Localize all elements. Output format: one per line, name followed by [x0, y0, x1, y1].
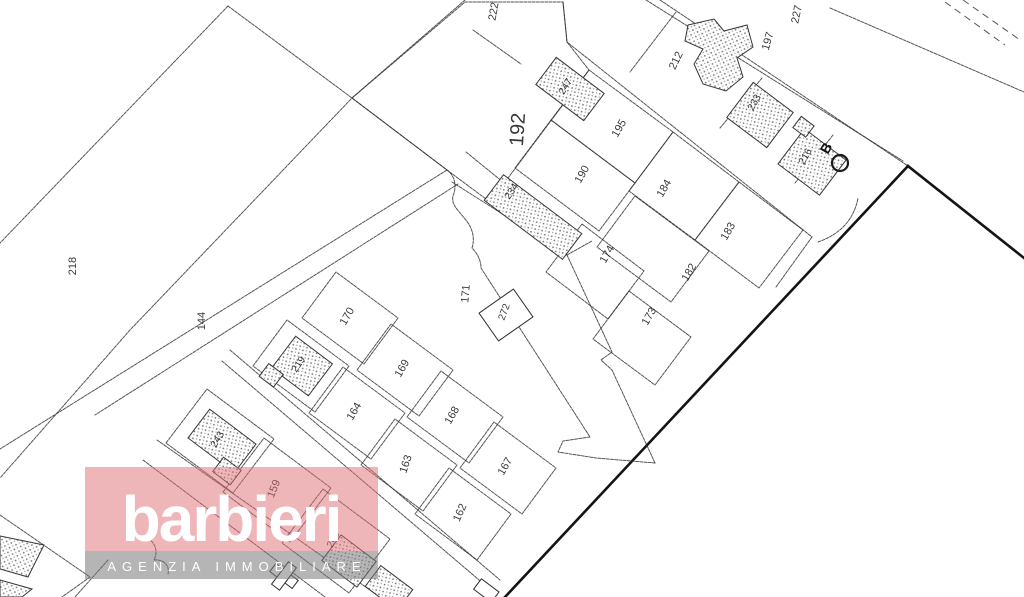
building-west-triangle — [0, 536, 44, 577]
brand-name: barbieri — [122, 483, 341, 555]
brand-watermark: barbieri AGENZIA IMMOBILIARE — [85, 467, 378, 579]
lane-edge — [567, 255, 655, 463]
main-road-edge — [908, 166, 1024, 258]
parcel-label-173: 173 — [640, 306, 660, 328]
parcel-label-163: 163 — [398, 453, 415, 474]
parcel-192 — [352, 2, 589, 202]
parcel-label-197: 197 — [760, 31, 777, 52]
parcel-divider — [818, 198, 858, 242]
parcel-label-218: 218 — [67, 257, 79, 275]
cadastral-map-screenshot: B 21814422219224719519018418318217417323… — [0, 0, 1024, 597]
parcel-label-227: 227 — [789, 4, 805, 24]
parcel-label-183: 183 — [719, 221, 739, 243]
parcel-label-212: 212 — [667, 50, 686, 72]
cadastral-map-svg: B 21814422219224719519018418318217417323… — [0, 0, 1024, 597]
building-233 — [727, 82, 793, 147]
parcel-divider — [473, 30, 521, 64]
boundary-line — [830, 8, 1024, 92]
parcel-label-182: 182 — [680, 262, 700, 284]
parcel-label-164: 164 — [345, 401, 365, 423]
parcel-label-222: 222 — [487, 1, 502, 21]
building-234 — [484, 175, 582, 260]
parcel-label-192: 192 — [506, 112, 530, 147]
boundary-line — [0, 170, 447, 449]
building-216 — [778, 129, 846, 195]
block-edge — [776, 237, 812, 287]
parcel-label-162: 162 — [451, 502, 469, 524]
parcel-label-190: 190 — [573, 164, 593, 186]
parcel-label-167: 167 — [496, 456, 516, 478]
parcel-label-195: 195 — [610, 118, 630, 140]
parcel-label-144: 144 — [196, 312, 208, 330]
parcel-label-169: 169 — [393, 358, 413, 380]
building-outline-small — [474, 579, 499, 597]
boundary-line — [62, 577, 90, 597]
parcel-label-174: 174 — [598, 244, 618, 266]
brand-tagline: AGENZIA IMMOBILIARE — [107, 559, 366, 574]
parcel-label-168: 168 — [443, 405, 463, 427]
lane-notch — [558, 437, 655, 463]
dashed-boundary — [963, 0, 1020, 40]
parcel-label-184: 184 — [655, 178, 675, 200]
parcel-label-170: 170 — [338, 306, 358, 328]
boundary-line — [0, 6, 228, 243]
parcel-184 — [629, 132, 739, 240]
parcel-label-171: 171 — [459, 284, 473, 303]
parcel-173 — [593, 291, 691, 385]
building-west-sliver — [0, 580, 32, 597]
